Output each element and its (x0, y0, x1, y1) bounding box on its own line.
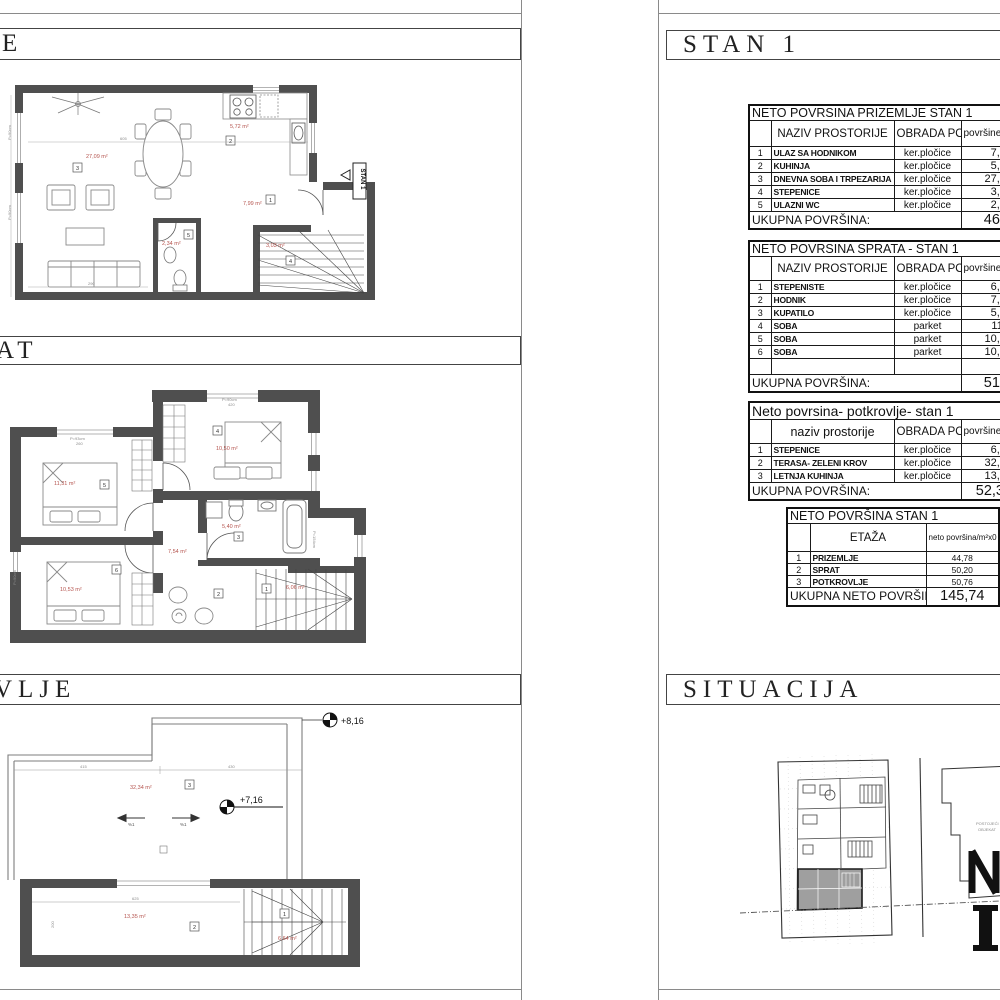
header-povrsine: površine/m (961, 121, 1000, 147)
kitchen-furniture (223, 93, 307, 175)
area-living: 27,09 m² (86, 154, 108, 160)
row-area: 27,09 (961, 173, 1000, 186)
row-num: 2 (787, 564, 810, 576)
living-furniture (47, 185, 140, 287)
site-plan-situacija: POSTOJEĆI OBJEKAT (740, 733, 1000, 990)
bed-lower-left (47, 562, 120, 624)
room-number-hall: 1 (269, 198, 272, 204)
area-stairs: 6,06 m² (286, 585, 305, 591)
area-room3: 10,53 m² (60, 587, 82, 593)
row-num: 2 (749, 294, 771, 307)
room-number-stairs: 1 (265, 587, 268, 593)
parapet-left: P=90cm (12, 570, 17, 585)
row-area: 13,35 (961, 470, 1000, 483)
room-number-stairs: 4 (289, 259, 292, 265)
row-num: 3 (749, 470, 771, 483)
dim-top: 605 (120, 136, 127, 141)
room-number-hall: 2 (217, 592, 220, 598)
section-title-potkrovlje-text: VLJE (0, 676, 76, 704)
entry-door-arc (298, 190, 323, 215)
empty-cell (894, 359, 961, 375)
area-room2: 10,50 m² (216, 446, 238, 452)
slope-arrows: %1 %1 (118, 815, 199, 828)
row-name: TERASA- ZELENI KROV (771, 457, 894, 470)
entry-marker: STAN 1 (341, 163, 366, 199)
header-naziv: NAZIV PROSTORIJE (771, 257, 894, 281)
row-name: KUHINJA (771, 160, 894, 173)
row-name: PRIZEMLJE (810, 552, 926, 564)
wc-door-arc (158, 223, 176, 241)
dim-bottom: 625 (132, 896, 139, 901)
area-bath: 5,40 m² (222, 524, 241, 530)
row-value: 50,76 (926, 576, 999, 588)
dim-top-right: 420 (228, 402, 235, 407)
slope-right-label: %1 (180, 822, 187, 827)
chandelier-icon (52, 93, 104, 115)
area-kitchen: 13,35 m² (124, 914, 146, 920)
header-blank (787, 524, 810, 552)
room-number-kitchen: 2 (193, 925, 196, 931)
row-name: ULAZ SA HODNIKOM (771, 147, 894, 160)
table-summary-title: NETO POVRŠINA STAN 1 (787, 508, 999, 524)
neighbor-note-line1: POSTOJEĆI (976, 821, 999, 826)
area-kitchen: 5,72 m² (230, 124, 249, 130)
header-naziv: naziv prostorije (771, 420, 894, 444)
area-stairs: 6,64 m² (278, 936, 297, 942)
row-name: HODNIK (771, 294, 894, 307)
dim-bottom: 290 (88, 281, 95, 286)
area-wc: 2,34 m² (162, 241, 181, 247)
room-number-bed2: 5 (103, 483, 106, 489)
drawing-sheet: E AT VLJE STAN 1 SITUACIJA (0, 0, 1000, 1000)
header-povrsine: površine/m (961, 257, 1000, 281)
row-num: 1 (749, 444, 771, 457)
parapet-right: P=154cm (312, 531, 317, 549)
table-potkrovlje: Neto povrsina- potkrovlje- stan 1 naziv … (748, 401, 1000, 501)
row-floor: ker.pločice (894, 281, 961, 294)
area-hall: 7,54 m² (168, 549, 187, 555)
total-label: UKUPNA POVRŠINA: (749, 212, 961, 230)
parapet-left-2: P=90cm (8, 205, 12, 220)
row-floor: ker.pločice (894, 199, 961, 212)
dim-top-left: 260 (76, 441, 83, 446)
area-terrace: 32,34 m² (130, 785, 152, 791)
row-floor: parket (894, 346, 961, 359)
highlighted-unit (798, 869, 862, 910)
row-num: 1 (749, 281, 771, 294)
sliding-door (117, 881, 210, 886)
neighbor-note-line2: OBJEKAT (978, 827, 996, 832)
row-area: 32,34 (961, 457, 1000, 470)
row-floor: parket (894, 320, 961, 333)
row-name: STEPENISTE (771, 281, 894, 294)
row-num: 2 (749, 457, 771, 470)
total-label: UKUPNA POVRŠINA: (749, 483, 961, 501)
floor-plan-sprat: 5 4 3 6 2 1 11,31 m² 10,50 m² 5,40 m² 7,… (8, 383, 393, 645)
elevation-marker-high: +8,16 (302, 713, 364, 727)
total-value: 52,33 (961, 483, 1000, 501)
left-sheet-top-line (0, 13, 521, 14)
row-floor: parket (894, 333, 961, 346)
area-labels: 32,34 m² 13,35 m² 6,64 m² (124, 785, 297, 942)
row-floor: ker.pločice (894, 160, 961, 173)
stairs (258, 230, 364, 293)
row-name: POTKROVLJE (810, 576, 926, 588)
row-name: STEPENICE (771, 444, 894, 457)
header-obrada: OBRADA PODA (894, 121, 961, 147)
total-label: UKUPNA NETO POVRŠINA: (787, 588, 926, 606)
section-title-potkrovlje: VLJE (0, 674, 521, 705)
row-area: 10,92 (961, 346, 1000, 359)
area-hall: 7,99 m² (243, 201, 262, 207)
area-room1: 11,31 m² (54, 481, 75, 487)
section-title-stan1: STAN 1 (666, 30, 1000, 60)
row-num: 3 (749, 173, 771, 186)
row-num: 5 (749, 333, 771, 346)
header-naziv: NAZIV PROSTORIJE (771, 121, 894, 147)
left-sheet-bottom-line (0, 989, 521, 990)
header-povrsine: površine (961, 420, 1000, 444)
stairs (256, 569, 352, 630)
bed-upper-left (43, 463, 117, 525)
neighbor-note: POSTOJEĆI OBJEKAT (976, 821, 999, 832)
total-value: 145,74 (926, 588, 999, 606)
row-floor: ker.pločice (894, 470, 961, 483)
row-area: 2,34 (961, 199, 1000, 212)
row-area: 7,99 (961, 147, 1000, 160)
dim-right: 430 (228, 764, 235, 769)
right-sheet-top-line (658, 13, 1000, 14)
table-prizemlje: NETO POVRSINA PRIZEMLJE STAN 1 NAZIV PRO… (748, 104, 1000, 230)
bathroom-fixtures (206, 500, 306, 553)
row-name: KUPATILO (771, 307, 894, 320)
room-number-stairs: 1 (283, 912, 286, 918)
row-num: 3 (749, 307, 771, 320)
row-name: SPRAT (810, 564, 926, 576)
section-title-stan1-text: STAN 1 (683, 31, 801, 59)
table-prizemlje-title: NETO POVRSINA PRIZEMLJE STAN 1 (749, 105, 1000, 121)
slope-left-label: %1 (128, 822, 135, 827)
row-num: 1 (787, 552, 810, 564)
table-summary: NETO POVRŠINA STAN 1 ETAŽA neto površina… (786, 507, 1000, 607)
room-number-bed3: 6 (115, 568, 118, 574)
row-name: STEPENICE (771, 186, 894, 199)
row-area: 6,06 (961, 281, 1000, 294)
row-area: 5,40 (961, 307, 1000, 320)
dining-table (135, 109, 191, 199)
row-num: 6 (749, 346, 771, 359)
header-obrada: OBRADA PODA (894, 257, 961, 281)
row-name: SOBA (771, 346, 894, 359)
row-name: SOBA (771, 333, 894, 346)
row-area: 10,53 (961, 333, 1000, 346)
header-neto: neto površina/m²x0 (926, 524, 999, 552)
row-num: 2 (749, 160, 771, 173)
row-num: 1 (749, 147, 771, 160)
row-floor: ker.pločice (894, 173, 961, 186)
row-floor: ker.pločice (894, 147, 961, 160)
section-title-situacija-text: SITUACIJA (683, 676, 863, 704)
row-area: 3,03 (961, 186, 1000, 199)
dim-left: 415 (80, 764, 87, 769)
section-title-sprat: AT (0, 336, 521, 365)
elev-low-label: +7,16 (240, 795, 263, 805)
row-area: 7,54 (961, 294, 1000, 307)
room-number-wc: 5 (187, 233, 190, 239)
left-sheet-right-edge (521, 0, 522, 1000)
wc-fixtures (164, 247, 187, 291)
floor-plan-prizemlje: STAN 1 3 2 1 4 5 27,09 m² 5,72 m² 7,99 m… (8, 75, 393, 310)
row-num: 3 (787, 576, 810, 588)
header-etaza: ETAŽA (810, 524, 926, 552)
row-name: LETNJA KUHINJA (771, 470, 894, 483)
dim-side: 200 (50, 921, 55, 928)
row-floor: ker.pločice (894, 294, 961, 307)
row-num: 4 (749, 320, 771, 333)
room-number-terrace: 3 (188, 783, 191, 789)
row-floor: ker.pločice (894, 457, 961, 470)
room-number-bed1: 4 (216, 429, 219, 435)
row-area: 11,3 (961, 320, 1000, 333)
room-number-bath: 3 (237, 535, 240, 541)
section-title-prizemlje-text: E (2, 30, 23, 58)
elev-high-label: +8,16 (341, 716, 364, 726)
empty-cell (749, 359, 771, 375)
total-value: 46,1 (961, 212, 1000, 230)
row-floor: ker.pločice (894, 186, 961, 199)
header-blank (749, 121, 771, 147)
section-title-prizemlje: E (0, 28, 521, 60)
row-name: DNEVNA SOBA I TRPEZARIJA (771, 173, 894, 186)
floor-plan-potkrovlje: +8,16 +7,16 %1 %1 415 430 625 200 (0, 708, 390, 988)
regulation-dashed-line (740, 901, 1000, 913)
right-sheet-left-edge (658, 0, 659, 1000)
row-area: 6,64 (961, 444, 1000, 457)
stairs (244, 889, 346, 955)
parapet-left-1: P=90cm (8, 125, 12, 140)
table-sprat-title: NETO POVRSINA SPRATA - STAN 1 (749, 241, 1000, 257)
header-obrada: OBRADA PODA (894, 420, 961, 444)
section-title-situacija: SITUACIJA (666, 674, 1000, 705)
area-stairs: 3,03 m² (266, 243, 285, 249)
row-floor: ker.pločice (894, 444, 961, 457)
elevation-marker-low: +7,16 (220, 795, 283, 814)
row-num: 5 (749, 199, 771, 212)
room-number-living: 3 (76, 166, 79, 172)
empty-cell (771, 359, 894, 375)
total-value: 51,7 (961, 375, 1000, 393)
header-blank (749, 420, 771, 444)
header-blank (749, 257, 771, 281)
row-value: 50,20 (926, 564, 999, 576)
entry-marker-label: STAN 1 (359, 169, 365, 191)
table-sprat: NETO POVRSINA SPRATA - STAN 1 NAZIV PROS… (748, 240, 1000, 393)
row-name: SOBA (771, 320, 894, 333)
total-label: UKUPNA POVRŠINA: (749, 375, 961, 393)
row-value: 44,78 (926, 552, 999, 564)
empty-cell (961, 359, 1000, 375)
table-potkrovlje-title: Neto povrsina- potkrovlje- stan 1 (749, 402, 1000, 420)
row-name: ULAZNI WC (771, 199, 894, 212)
row-floor: ker.pločice (894, 307, 961, 320)
desk-and-chairs (169, 587, 213, 624)
row-area: 5,72 (961, 160, 1000, 173)
row-num: 4 (749, 186, 771, 199)
section-title-sprat-text: AT (0, 337, 39, 365)
